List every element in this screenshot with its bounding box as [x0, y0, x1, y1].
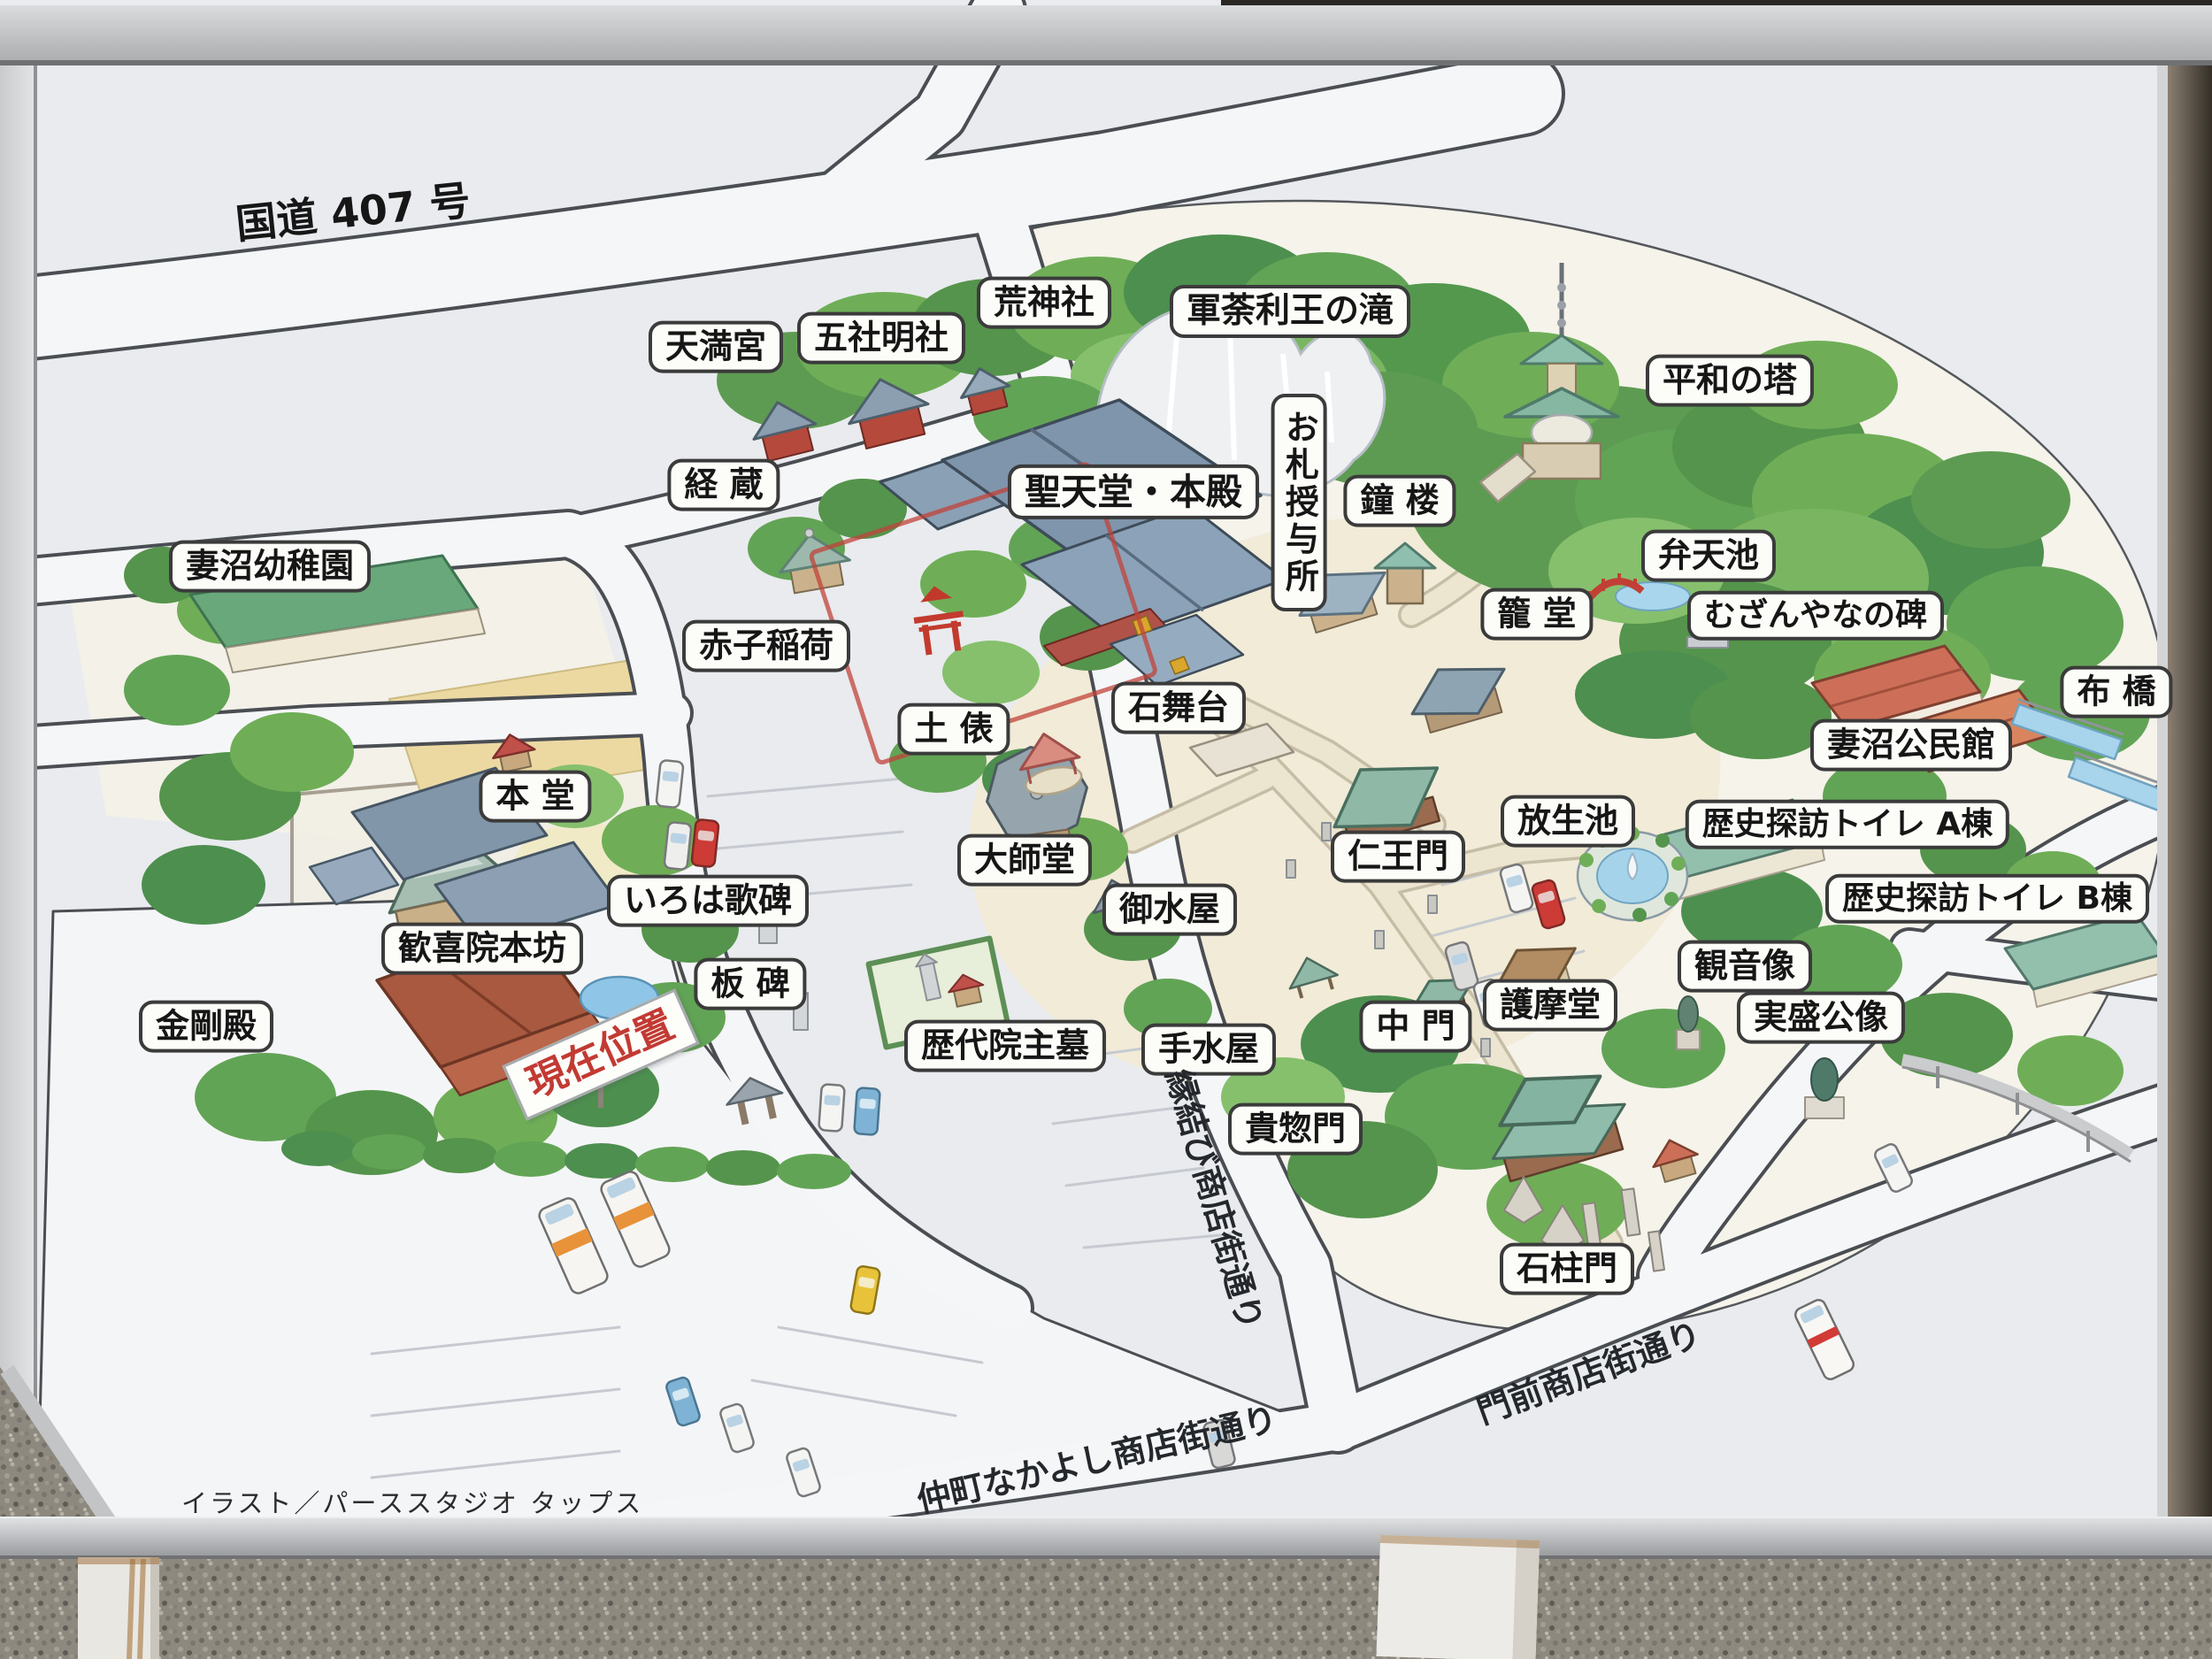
- map-label-komorido: 籠 堂: [1480, 588, 1593, 641]
- map-label-kominkan: 妻沼公民館: [1810, 719, 2012, 772]
- map-label-ofuda-office: お札授与所: [1271, 394, 1327, 611]
- map-label-muzanyana: むざんやなの碑: [1687, 591, 1944, 641]
- map-label-kojinja: 荒神社: [977, 277, 1111, 329]
- map-label-nakacho-street: 仲町なかよし商店街通り: [913, 1399, 1281, 1520]
- map-label-kyozo: 経 蔵: [667, 459, 780, 511]
- map-label-iroha: いろは歌碑: [607, 875, 809, 927]
- map-label-honbo: 歓喜院本坊: [381, 923, 583, 975]
- map-label-benten-pond: 弁天池: [1641, 530, 1776, 582]
- map-label-hondo: 本 堂: [479, 771, 591, 823]
- map-label-monzen-street: 門前商店街通り: [1471, 1314, 1706, 1432]
- map-label-shoro: 鐘 楼: [1343, 475, 1455, 527]
- illustrator-credit: イラスト／パーススタジオ タップス: [181, 1483, 643, 1520]
- map-label-tenmangu: 天満宮: [649, 321, 783, 373]
- map-label-omizuya: 御水屋: [1102, 884, 1237, 936]
- map-labels: イラスト／パーススタジオ タップス 国道 407 号天満宮五社明社荒神社軍荼利王…: [0, 0, 2212, 1659]
- map-label-current-location: 現在位置: [502, 988, 699, 1120]
- map-label-gundari-falls: 軍荼利王の滝: [1170, 285, 1410, 338]
- map-label-sanemori: 実盛公像: [1737, 992, 1905, 1044]
- map-label-akago-inari: 赤子稲荷: [682, 620, 850, 672]
- map-label-gomado: 護摩堂: [1483, 979, 1617, 1032]
- map-label-shodendo-honden: 聖天堂・本殿: [1008, 465, 1259, 519]
- map-label-kongoden: 金剛殿: [139, 1001, 273, 1053]
- map-label-itahi: 板 碑: [694, 958, 806, 1010]
- map-label-sekichumon: 石柱門: [1500, 1243, 1634, 1295]
- map-label-toilet-b: 歴史探訪トイレ B棟: [1825, 874, 2149, 924]
- signboard-photo: イラスト／パーススタジオ タップス 国道 407 号天満宮五社明社荒神社軍荼利王…: [0, 0, 2212, 1659]
- map-label-hojoike: 放生池: [1501, 795, 1635, 848]
- map-label-kisomon: 貴惣門: [1228, 1103, 1363, 1156]
- map-label-nunobashi: 布 橋: [2060, 666, 2172, 718]
- map-label-niomon: 仁王門: [1331, 831, 1465, 883]
- map-label-dohyo: 土 俵: [897, 703, 1010, 756]
- map-label-kindergarten: 妻沼幼稚園: [169, 541, 371, 593]
- map-label-abbots-graves: 歴代院主墓: [904, 1020, 1106, 1072]
- map-label-route-407: 国道 407 号: [234, 176, 472, 249]
- map-label-ishibutai: 石舞台: [1111, 682, 1246, 734]
- map-label-gosha-meisha: 五社明社: [797, 312, 965, 365]
- map-label-kannon: 観音像: [1678, 941, 1812, 993]
- map-label-daishido: 大師堂: [957, 834, 1092, 887]
- map-label-toilet-a: 歴史探訪トイレ A棟: [1686, 800, 2009, 849]
- map-label-chumon: 中 門: [1359, 1001, 1471, 1053]
- map-label-peace-tower: 平和の塔: [1646, 355, 1814, 407]
- map-label-chozuya: 手水屋: [1141, 1024, 1276, 1076]
